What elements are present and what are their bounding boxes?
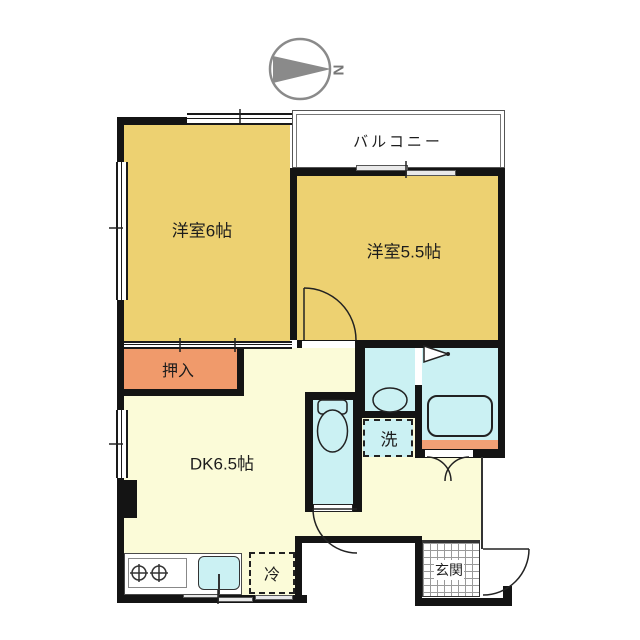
- washroom-area: [365, 348, 415, 413]
- window-left-room6: [116, 162, 128, 300]
- hall-outer-line: [481, 457, 483, 549]
- toilet-door-slab: [313, 504, 353, 512]
- pipe-shaft: [120, 480, 137, 518]
- wall-entrance-left: [415, 536, 422, 606]
- room55-door-opening: [302, 341, 355, 348]
- compass-icon: N: [270, 39, 347, 99]
- wall-washroom-bottom: [355, 411, 422, 418]
- entrance-label: 玄関: [434, 560, 464, 580]
- bath-fold-door-opening: [425, 450, 473, 457]
- fridge-window-panel: [255, 595, 293, 600]
- compass-north-letter: N: [330, 65, 347, 76]
- wall-notch-left: [295, 536, 302, 600]
- kitchen-window-panel-2: [218, 597, 253, 602]
- fridge-label: 冷: [264, 561, 280, 585]
- bathroom-area: [422, 348, 498, 440]
- stove: [128, 558, 187, 588]
- wall-washroom-left: [355, 340, 365, 418]
- balcony-sliding-panel-1: [356, 165, 408, 171]
- bath-door-opening: [415, 348, 422, 385]
- window-top: [187, 113, 292, 125]
- kitchen-sink: [198, 556, 240, 590]
- closet-sliding-track: [124, 341, 292, 349]
- window-left-dk: [116, 410, 128, 478]
- washer-label: 洗: [381, 426, 398, 451]
- balcony-sliding-panel-2: [406, 170, 456, 176]
- wall-corner-stub: [503, 586, 512, 606]
- balcony-label: バルコニー: [353, 131, 443, 152]
- wall-right-upper: [498, 168, 505, 457]
- wall-closet-bottom: [120, 389, 244, 396]
- room6-label: 洋室6帖: [172, 217, 232, 242]
- bathroom-step: [420, 440, 498, 449]
- room55-label: 洋室5.5帖: [367, 238, 442, 263]
- wall-notch-top: [295, 536, 422, 543]
- floor-plan: N: [0, 0, 640, 640]
- dk-label: DK6.5帖: [190, 450, 254, 475]
- wall-entrance-bottom: [415, 598, 512, 606]
- toilet-area: [313, 400, 353, 505]
- wall-toilet-left: [305, 392, 313, 512]
- wall-between-rooms: [290, 168, 297, 340]
- wall-bath-left: [415, 385, 422, 458]
- closet-label: 押入: [162, 357, 194, 381]
